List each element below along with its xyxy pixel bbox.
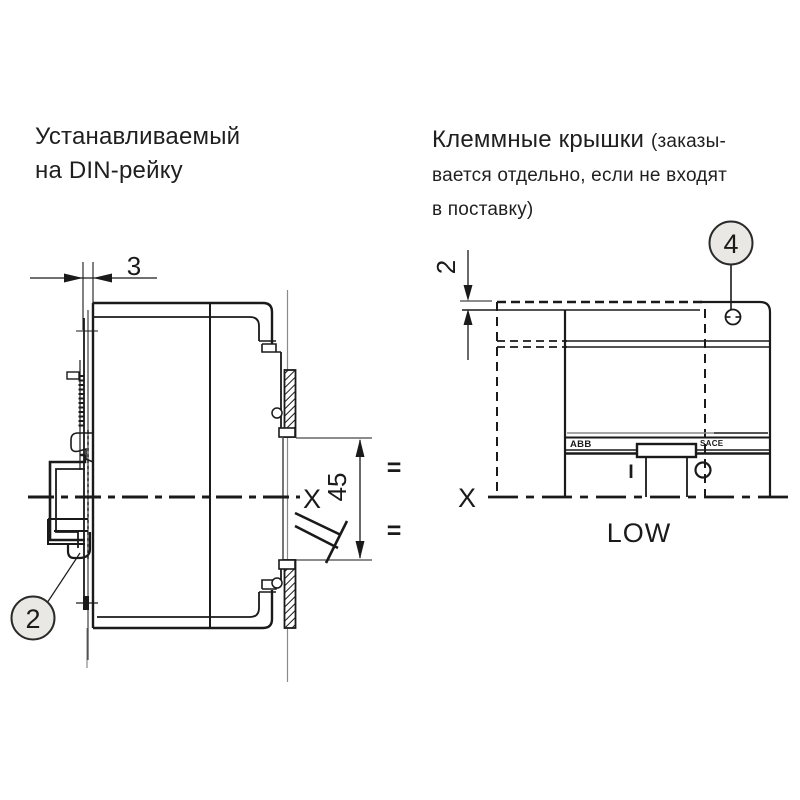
left-title-line1: Устанавливаемый xyxy=(35,120,240,154)
terminal-hatch-top xyxy=(272,370,296,437)
right-title-note-1: (заказы- xyxy=(651,131,726,152)
terminal-screw-icon xyxy=(272,578,282,588)
arrowhead-up-icon xyxy=(356,439,365,457)
right-diagram-title: Клеммные крышки (заказы- вается отдельно… xyxy=(432,123,727,227)
switch-on-marker: I xyxy=(628,462,633,483)
arrowhead-left-icon xyxy=(93,274,112,283)
breaker-front-outline xyxy=(462,302,770,497)
dim-3-label: 3 xyxy=(127,251,141,281)
terminal-cover-dashed-outline xyxy=(497,302,705,497)
cover-screw-icon xyxy=(726,310,741,325)
equal-sign-top: = xyxy=(387,454,402,482)
upper-hook xyxy=(71,433,93,462)
right-title-main: Клеммные крышки xyxy=(432,126,644,153)
mounting-plane-line xyxy=(87,290,288,682)
toggle-recess xyxy=(646,457,687,497)
axis-x-label-right: X xyxy=(458,483,476,513)
callout-4: 4 xyxy=(710,222,753,325)
callout-2-label: 2 xyxy=(25,604,40,634)
terminal-hatch-bottom xyxy=(272,560,296,628)
dim-2-label: 2 xyxy=(431,260,461,274)
rating-window xyxy=(637,444,696,457)
arrowhead-up-icon xyxy=(464,309,473,325)
axis-x-label-left: X xyxy=(303,484,321,514)
callout-2: 2 xyxy=(12,553,81,640)
terminal-cover-front-view-drawing: 2 ABB SACE xyxy=(430,215,800,560)
arrowhead-down-icon xyxy=(356,541,365,559)
left-title-line2: на DIN-рейку xyxy=(35,154,240,188)
faceplate-strip: ABB SACE xyxy=(565,433,770,457)
switch-off-symbol-icon xyxy=(696,463,711,478)
size-label-low: LOW xyxy=(607,518,672,548)
arrowhead-down-icon xyxy=(464,285,473,301)
toggle-handle xyxy=(295,513,347,563)
brand-label: ABB xyxy=(570,439,591,450)
arrowhead-right-icon xyxy=(64,274,83,283)
din-rail-side-view-drawing: 3 xyxy=(0,250,430,700)
dimension-2: 2 xyxy=(431,250,492,360)
right-title-note-2: вается отдельно, если не входят xyxy=(432,159,727,193)
terminal-screw-icon xyxy=(272,408,282,418)
left-diagram-title: Устанавливаемый на DIN-рейку xyxy=(35,120,240,188)
clamp-pin xyxy=(67,372,79,379)
dim-45-label: 45 xyxy=(322,473,352,502)
callout-4-label: 4 xyxy=(723,229,738,259)
technical-drawing-page: Устанавливаемый на DIN-рейку Клеммные кр… xyxy=(0,0,800,800)
equal-sign-bottom: = xyxy=(387,517,402,545)
breaker-body-outline xyxy=(93,303,283,628)
series-label: SACE xyxy=(700,439,724,448)
